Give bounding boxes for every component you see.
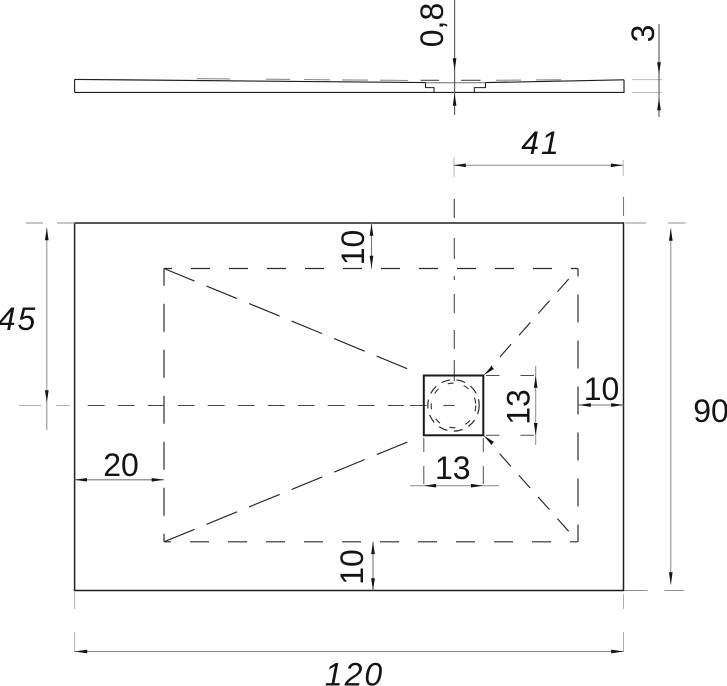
- svg-text:13: 13: [501, 389, 537, 425]
- svg-text:20: 20: [103, 447, 139, 483]
- svg-text:90: 90: [693, 393, 727, 429]
- svg-text:13: 13: [435, 450, 471, 486]
- svg-text:10: 10: [335, 230, 371, 266]
- svg-text:120: 120: [325, 657, 384, 686]
- svg-text:10: 10: [334, 549, 370, 585]
- svg-text:10: 10: [584, 371, 620, 407]
- svg-text:3: 3: [625, 25, 661, 43]
- svg-text:0,8: 0,8: [414, 3, 450, 47]
- svg-text:41: 41: [521, 125, 561, 161]
- svg-text:45: 45: [0, 301, 37, 337]
